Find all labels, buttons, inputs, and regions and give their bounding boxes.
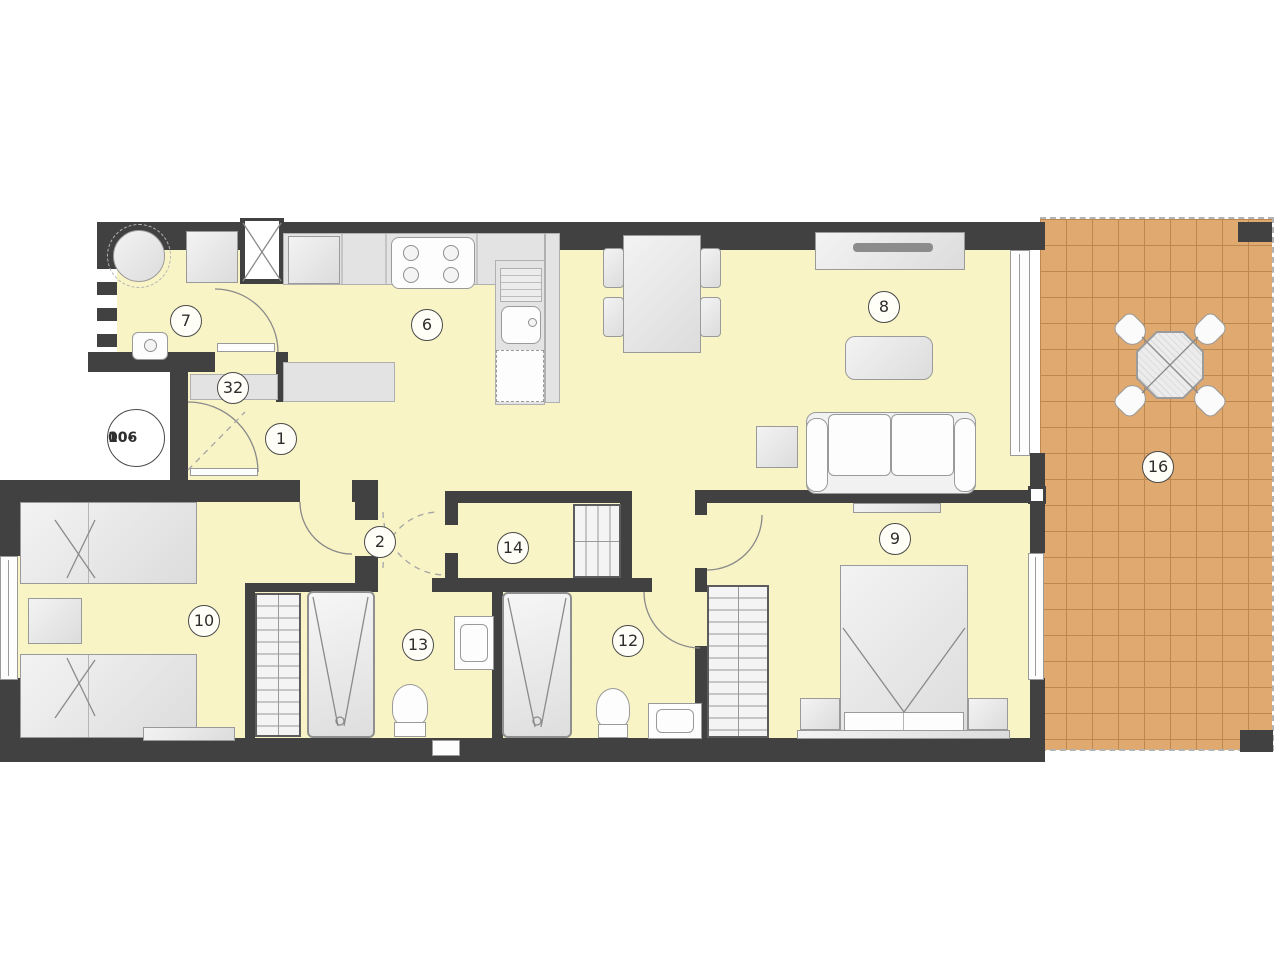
room-label-bathroom-2: 12 <box>612 625 644 657</box>
room-label-bedroom-2: 10 <box>188 605 220 637</box>
room-label-hall-closet: 32 <box>217 372 249 404</box>
room-labels: 126789101213141632 <box>0 0 1280 960</box>
unit-id-line2: 006 <box>108 430 137 446</box>
floor-plan: 126789101213141632 10- 006 <box>0 0 1280 960</box>
room-label-kitchen: 6 <box>411 309 443 341</box>
room-label-hallway: 2 <box>364 526 396 558</box>
room-label-bedroom-main: 9 <box>879 523 911 555</box>
room-label-laundry: 7 <box>170 305 202 337</box>
room-label-storage: 14 <box>497 532 529 564</box>
unit-id-badge: 10- 006 <box>107 409 165 467</box>
room-label-living-room: 8 <box>868 291 900 323</box>
room-label-entry-hall: 1 <box>265 423 297 455</box>
room-label-bathroom-1: 13 <box>402 629 434 661</box>
room-label-terrace: 16 <box>1142 451 1174 483</box>
